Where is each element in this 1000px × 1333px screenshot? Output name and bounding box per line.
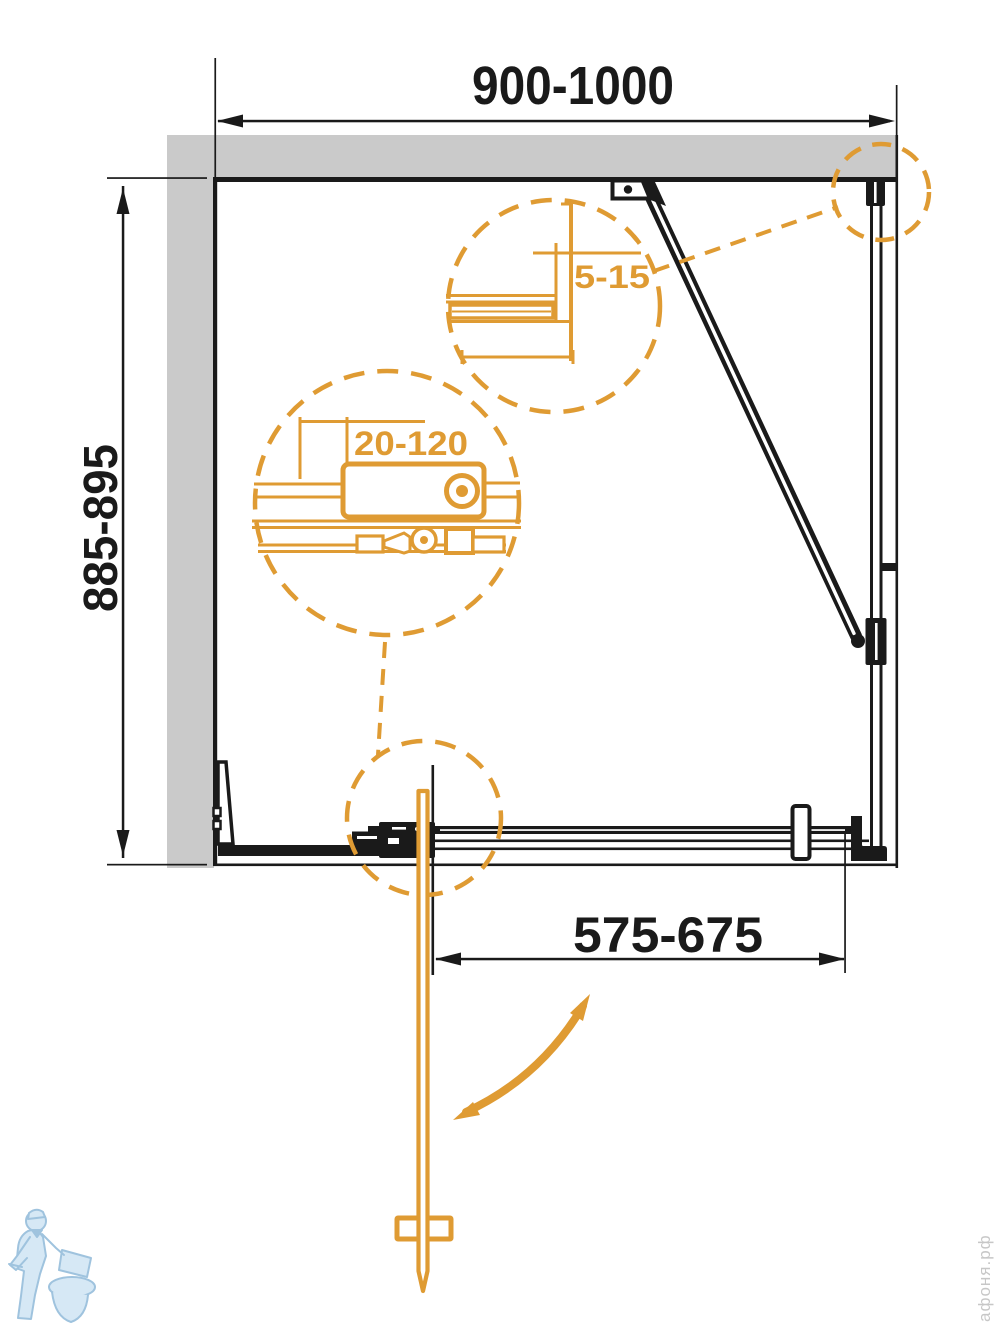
detail-block	[473, 537, 504, 552]
detail-label-wall-profile: 5-15	[574, 259, 650, 295]
callout-connector	[654, 207, 838, 271]
panel-support-tick	[881, 563, 896, 571]
dimension-label-width: 900-1000	[472, 56, 674, 116]
bracket-screw	[624, 185, 632, 193]
rail-wall-bracket	[793, 806, 810, 859]
plumber-body	[16, 1230, 46, 1319]
door-hinge-slit	[875, 623, 878, 660]
arrowhead-right	[819, 953, 845, 966]
wall-top-edge	[213, 177, 898, 182]
arrowhead-right	[869, 115, 895, 128]
detail-wheel-axle	[420, 536, 428, 544]
detail-label-bracket: 20-120	[354, 425, 468, 463]
detail-callout-bracket: 20-120	[252, 371, 521, 635]
detail-block	[357, 536, 383, 552]
door-edge-reference-line	[432, 765, 435, 975]
plumber-hair	[28, 1210, 45, 1219]
detail-block	[446, 529, 473, 553]
detail-callout-wall-profile: 5-15	[446, 200, 660, 412]
glass-panels	[613, 179, 897, 858]
pivot-door-glass-core	[649, 191, 855, 634]
toilet-pedestal	[52, 1292, 88, 1322]
hinge-arm-slit	[357, 836, 377, 839]
hinge-slot	[388, 838, 399, 844]
panel-top-profile-slit	[874, 182, 877, 203]
plumber-watermark	[9, 1210, 95, 1322]
technical-drawing-page: 900-1000 885-895 575-675	[0, 0, 1000, 1333]
site-watermark: афоня.рф	[975, 1234, 994, 1322]
pivot-knob	[851, 634, 865, 648]
profile-notch	[214, 808, 221, 816]
dimension-label-door: 575-675	[573, 907, 763, 963]
extension-line	[214, 58, 216, 178]
fixed-panel-glass-line	[880, 183, 883, 858]
tray-front-edge	[213, 864, 896, 867]
enclosure-right-outline	[896, 135, 899, 868]
swing-arc	[466, 1006, 583, 1112]
fixed-panel-glass-line	[870, 183, 873, 858]
left-wall-profile	[218, 762, 233, 844]
profile-notch	[214, 821, 221, 829]
extension-line	[107, 864, 207, 866]
dimension-bottom: 575-675	[432, 765, 846, 975]
arrowhead-left	[217, 115, 243, 128]
detail-roller-axle	[456, 485, 468, 497]
callout-connector	[378, 642, 385, 755]
shower-enclosure-drawing: 900-1000 885-895 575-675	[0, 0, 1000, 1333]
dimension-line	[218, 120, 890, 123]
extension-line	[844, 833, 846, 973]
arrowhead-up	[117, 188, 130, 214]
hinge-slit	[392, 827, 406, 830]
arrowhead-down	[117, 830, 130, 856]
dimension-label-depth: 885-895	[75, 444, 128, 612]
door-open-position	[419, 791, 428, 1291]
extension-line	[107, 177, 207, 179]
extension-line	[896, 85, 898, 178]
arrowhead-left	[435, 953, 461, 966]
bottom-rail-assembly	[214, 762, 888, 861]
